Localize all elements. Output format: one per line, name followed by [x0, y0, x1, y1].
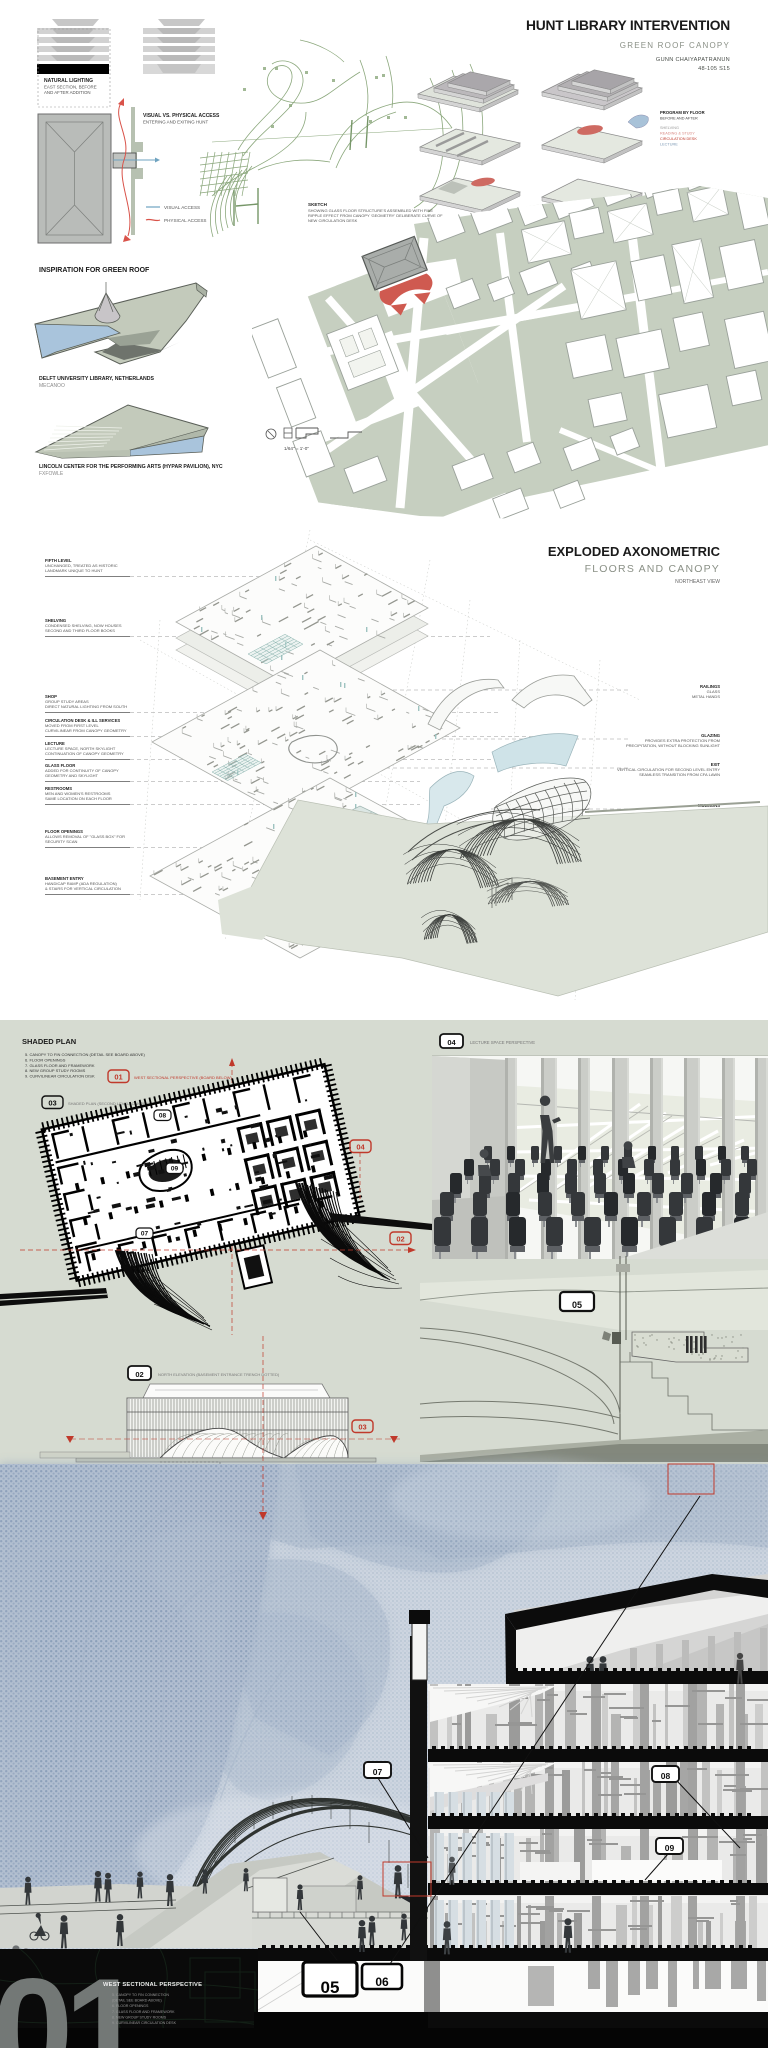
svg-text:VISUAL ACCESS: VISUAL ACCESS	[164, 205, 200, 210]
svg-text:LECTURE SPACE PERSPECTIVE: LECTURE SPACE PERSPECTIVE	[470, 1040, 535, 1045]
svg-text:8. NEW GROUP STUDY ROOMS: 8. NEW GROUP STUDY ROOMS	[25, 1068, 86, 1073]
svg-text:& STAIRS FOR VERTICAL CIRCULAT: & STAIRS FOR VERTICAL CIRCULATION	[45, 886, 121, 891]
svg-text:05: 05	[572, 1300, 582, 1310]
svg-text:04: 04	[447, 1038, 456, 1047]
svg-text:03: 03	[358, 1422, 366, 1431]
svg-text:VISUAL VS. PHYSICAL ACCESS: VISUAL VS. PHYSICAL ACCESS	[143, 113, 220, 119]
svg-text:PHYSICAL ACCESS: PHYSICAL ACCESS	[164, 218, 206, 223]
svg-text:08: 08	[159, 1112, 167, 1119]
svg-text:INSPIRATION FOR GREEN ROOF: INSPIRATION FOR GREEN ROOF	[39, 267, 150, 274]
svg-text:PRECIPITATION, WITHOUT BLOCKIN: PRECIPITATION, WITHOUT BLOCKING SUNLIGHT	[626, 743, 721, 748]
svg-text:METAL HANDS: METAL HANDS	[692, 694, 720, 699]
svg-text:FLOORS AND CANOPY: FLOORS AND CANOPY	[585, 563, 720, 575]
svg-text:05: 05	[321, 1978, 340, 1997]
svg-text:WEST SECTIONAL PERSPECTIVE (BO: WEST SECTIONAL PERSPECTIVE (BOARD BELOW)	[134, 1075, 232, 1080]
svg-text:HUNT LIBRARY INTERVENTION: HUNT LIBRARY INTERVENTION	[526, 18, 730, 33]
svg-text:8. NEW GROUP STUDY ROOMS: 8. NEW GROUP STUDY ROOMS	[112, 2015, 167, 2019]
svg-text:01: 01	[114, 1072, 122, 1081]
svg-text:WEST SECTIONAL PERSPECTIVE: WEST SECTIONAL PERSPECTIVE	[103, 1982, 202, 1988]
svg-text:SAME LOCATION ON EACH FLOOR: SAME LOCATION ON EACH FLOOR	[45, 796, 112, 801]
svg-text:08: 08	[661, 1771, 671, 1781]
svg-text:04: 04	[356, 1142, 365, 1151]
svg-text:EXPLODED AXONOMETRIC: EXPLODED AXONOMETRIC	[548, 544, 721, 559]
svg-text:NEW CIRCULATION DESK: NEW CIRCULATION DESK	[308, 218, 358, 223]
svg-text:LINCOLN CENTER FOR THE PERFORM: LINCOLN CENTER FOR THE PERFORMING ARTS (…	[39, 464, 223, 470]
svg-text:MECANOO: MECANOO	[39, 383, 65, 389]
svg-text:07: 07	[373, 1767, 383, 1777]
svg-text:NATURAL LIGHTING: NATURAL LIGHTING	[44, 78, 93, 84]
svg-text:07: 07	[141, 1230, 149, 1237]
svg-text:09: 09	[171, 1165, 179, 1172]
svg-text:03: 03	[48, 1098, 56, 1107]
svg-text:02: 02	[135, 1370, 143, 1379]
svg-text:SECURITY SCAN: SECURITY SCAN	[45, 839, 77, 844]
svg-text:GUNN CHAIYAPATRANUN: GUNN CHAIYAPATRANUN	[656, 57, 730, 63]
svg-text:FXFOWLE: FXFOWLE	[39, 471, 64, 477]
svg-text:CURVILINEAR FROM CANOPY GEOMET: CURVILINEAR FROM CANOPY GEOMETRY	[45, 728, 127, 733]
svg-text:LECTURE: LECTURE	[660, 143, 678, 147]
svg-text:(DETAIL SEE BOARD ABOVE): (DETAIL SEE BOARD ABOVE)	[112, 1999, 162, 2003]
svg-text:SECOND AND THIRD FLOOR BOOKS: SECOND AND THIRD FLOOR BOOKS	[45, 628, 115, 633]
svg-text:NORTH ELEVATION (BASEMENT ENTR: NORTH ELEVATION (BASEMENT ENTRANCE TRENC…	[158, 1372, 280, 1377]
svg-text:LANDMARK UNIQUE TO HUNT: LANDMARK UNIQUE TO HUNT	[45, 568, 103, 573]
svg-text:06: 06	[375, 1975, 389, 1989]
svg-text:6. FLOOR OPENINGS: 6. FLOOR OPENINGS	[112, 2004, 149, 2008]
svg-text:PROGRAM BY FLOOR: PROGRAM BY FLOOR	[660, 110, 705, 115]
svg-text:5. CANOPY TO FIN CONNECTION: 5. CANOPY TO FIN CONNECTION	[112, 1993, 169, 1997]
svg-text:09: 09	[665, 1843, 675, 1853]
svg-text:SHADED PLAN: SHADED PLAN	[22, 1037, 76, 1046]
svg-text:7. GLASS FLOOR AND FRAMEWORK: 7. GLASS FLOOR AND FRAMEWORK	[112, 2010, 175, 2014]
svg-text:6. FLOOR OPENINGS: 6. FLOOR OPENINGS	[25, 1057, 66, 1062]
svg-text:NORTHEAST VIEW: NORTHEAST VIEW	[675, 579, 720, 585]
svg-text:BEFORE AND AFTER: BEFORE AND AFTER	[660, 117, 698, 121]
svg-text:SEAMLESS TRANSITION FROM CFA L: SEAMLESS TRANSITION FROM CFA LAWN	[639, 772, 720, 777]
svg-text:DELFT UNIVERSITY LIBRARY, NETH: DELFT UNIVERSITY LIBRARY, NETHERLANDS	[39, 376, 155, 382]
svg-text:SHELVING: SHELVING	[660, 126, 679, 130]
svg-text:1/64" = 1'-0": 1/64" = 1'-0"	[284, 446, 309, 451]
svg-text:ENTERING AND EXITING HUNT: ENTERING AND EXITING HUNT	[143, 120, 208, 125]
svg-text:9. CURVILINEAR CIRCULATION DES: 9. CURVILINEAR CIRCULATION DESK	[112, 2021, 177, 2025]
svg-text:DIRECT NATURAL LIGHTING FROM S: DIRECT NATURAL LIGHTING FROM SOUTH	[45, 704, 127, 709]
svg-text:5. CANOPY TO FIN CONNECTION (D: 5. CANOPY TO FIN CONNECTION (DETAIL SEE …	[25, 1052, 145, 1057]
svg-text:CIRCULATION DESK: CIRCULATION DESK	[660, 137, 697, 141]
svg-text:48-105 S15: 48-105 S15	[698, 66, 730, 72]
svg-text:READING & STUDY: READING & STUDY	[660, 132, 695, 136]
svg-text:GREEN ROOF CANOPY: GREEN ROOF CANOPY	[620, 41, 730, 50]
svg-text:GEOMETRY AND SKYLIGHT: GEOMETRY AND SKYLIGHT	[45, 773, 99, 778]
svg-text:SKETCH: SKETCH	[308, 202, 328, 207]
svg-text:EAST SECTION, BEFORE: EAST SECTION, BEFORE	[44, 85, 97, 90]
svg-text:7. GLASS FLOOR AND FRAMEWORK: 7. GLASS FLOOR AND FRAMEWORK	[25, 1063, 95, 1068]
svg-text:9. CURVILINEAR CIRCULATION DIS: 9. CURVILINEAR CIRCULATION DISK	[25, 1074, 95, 1079]
svg-text:CONTINUATION OF CANOPY GEOMETR: CONTINUATION OF CANOPY GEOMETRY	[45, 751, 124, 756]
svg-text:AND AFTER ADDITION: AND AFTER ADDITION	[44, 90, 91, 95]
svg-text:02: 02	[396, 1234, 404, 1243]
